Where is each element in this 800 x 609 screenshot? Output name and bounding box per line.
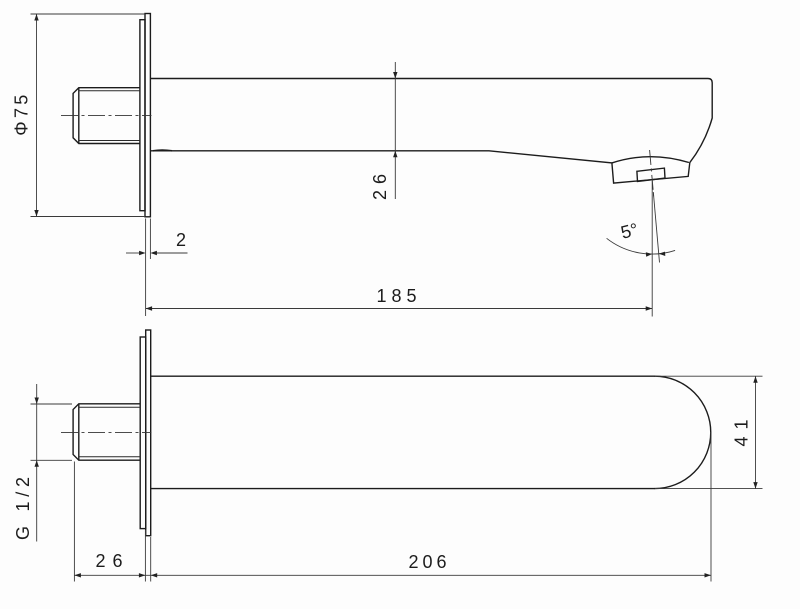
svg-text:206: 206 (409, 552, 447, 572)
svg-text:2: 2 (176, 230, 186, 250)
svg-text:G 1/2: G 1/2 (13, 477, 33, 540)
svg-text:185: 185 (377, 286, 417, 306)
svg-text:Φ75: Φ75 (12, 95, 32, 136)
